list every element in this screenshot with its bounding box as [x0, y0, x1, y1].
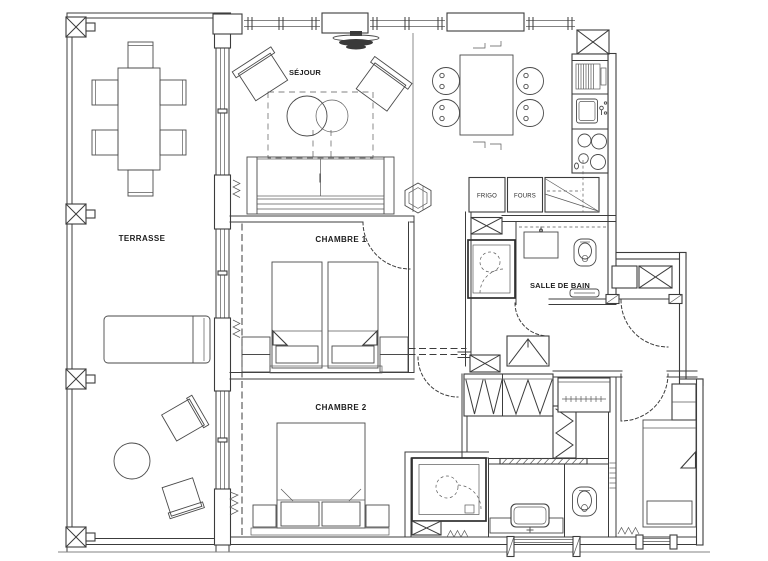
- headboard: [251, 528, 389, 535]
- floor-plan-drawing: TERRASSE SÉJOUR: [0, 0, 768, 561]
- chambre2-label: CHAMBRE 2: [315, 403, 366, 412]
- column-marker: [66, 204, 95, 224]
- threshold-hatch: [500, 459, 587, 465]
- wall-radiator-ticks: [610, 463, 617, 488]
- chambre2-door-arc: [418, 357, 458, 397]
- duct-x-box: [471, 218, 502, 235]
- cabinet: [672, 384, 696, 420]
- shower-room: [412, 458, 486, 537]
- nightstand: [366, 505, 389, 527]
- terrace-chair: [161, 395, 209, 442]
- wardrobe: [558, 378, 610, 412]
- coffee-table: [316, 100, 348, 132]
- sejour: SÉJOUR: [232, 31, 431, 214]
- radiator-icon: [618, 528, 639, 535]
- chambre-1: CHAMBRE 1: [242, 222, 410, 373]
- terrace-glazed-wall: [215, 13, 231, 551]
- ceiling-light-icon: [333, 31, 379, 50]
- nightstand: [253, 505, 276, 527]
- closet-x-box: [470, 355, 500, 372]
- fours-label: FOURS: [514, 194, 536, 200]
- kitchen: FRIGO FOURS: [469, 54, 608, 212]
- column-marker: [66, 369, 95, 389]
- washbasin: [511, 504, 549, 533]
- bathroom: SALLE DE BAIN: [468, 218, 599, 337]
- terrace-round-table: [114, 443, 150, 479]
- dining-area: [433, 41, 544, 150]
- lounge-chair: [104, 316, 210, 363]
- fridge-unit: FRIGO: [469, 178, 505, 213]
- floor-plan-canvas: TERRASSE SÉJOUR: [0, 0, 768, 561]
- oven-unit: FOURS: [508, 178, 543, 213]
- frigo-label: FRIGO: [477, 194, 497, 200]
- duct-x-box: [412, 521, 441, 535]
- column-marker-kitchen: [577, 30, 609, 54]
- bathroom-door-arc: [515, 303, 548, 336]
- dining-chair: [517, 100, 544, 127]
- chambre-2: CHAMBRE 2: [230, 357, 458, 535]
- closet-row: [464, 374, 553, 416]
- bathroom-vanity-sink: [524, 227, 558, 259]
- shower-cabin: [468, 240, 515, 298]
- bath-mat: [570, 289, 599, 297]
- hall-closets: [464, 336, 610, 458]
- side-table-hexagon: [405, 183, 431, 213]
- armchair: [353, 56, 412, 113]
- rug-dashed: [268, 92, 373, 158]
- chambre1-label: CHAMBRE 1: [315, 235, 366, 244]
- entry-door: [606, 295, 682, 348]
- top-wall-windows: [213, 13, 575, 34]
- curtain-spring-icons: [233, 180, 240, 338]
- toilet: [573, 487, 597, 516]
- coffee-table: [287, 96, 327, 136]
- sejour-label: SÉJOUR: [289, 68, 321, 77]
- headboard: [270, 366, 382, 373]
- single-bed: [328, 262, 378, 368]
- single-bed: [272, 262, 322, 368]
- dining-chair: [433, 100, 460, 127]
- nightstand: [380, 337, 408, 372]
- toilet: [574, 239, 596, 266]
- corner-cabinet: [545, 178, 599, 213]
- dining-chair: [517, 68, 544, 95]
- bedroom-3: [610, 374, 697, 534]
- dining-table: [460, 55, 513, 135]
- closet-bifold: [507, 336, 549, 366]
- terrasse-label: TERRASSE: [119, 234, 166, 243]
- sofa: [247, 157, 394, 214]
- terrace: TERRASSE: [92, 42, 210, 519]
- terrace-dining-table: [92, 42, 186, 196]
- radiator-icon: [447, 531, 468, 538]
- terrace-chair: [160, 477, 204, 519]
- column-markers-terrace: [66, 17, 95, 547]
- armchair: [232, 47, 291, 103]
- dining-chair: [433, 68, 460, 95]
- single-bed: [643, 420, 696, 527]
- bedroom3-door: [621, 374, 668, 421]
- washroom: [490, 487, 597, 533]
- entry-closet-x-box: [639, 266, 672, 288]
- double-bed: [277, 423, 365, 528]
- bottom-wall-windows: [507, 535, 677, 557]
- column-marker: [66, 17, 95, 37]
- nightstand: [242, 337, 270, 372]
- entry-shelf: [612, 266, 637, 288]
- closet-side: [553, 406, 576, 458]
- entry: [606, 266, 682, 347]
- radiator-icon: [230, 492, 238, 515]
